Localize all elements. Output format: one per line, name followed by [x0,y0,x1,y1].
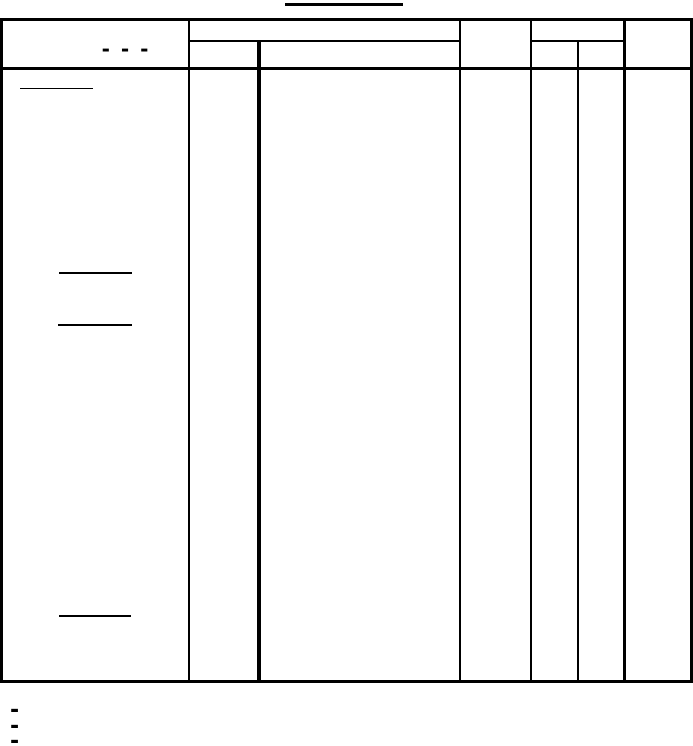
column-divider-6 [623,18,626,683]
footnote-dash-3: - [10,734,30,746]
column-divider-3 [459,18,461,683]
column-divider-2-thick [257,40,261,683]
blank-entry-line-2 [59,272,132,274]
scanned-document-page: - - - - - - [0,0,693,746]
header-sub-rule-left [188,40,460,42]
blank-entry-line-4 [59,615,131,617]
table-border-bottom [0,680,693,683]
table-border-left [0,18,3,683]
title-underline [285,3,403,6]
header-bottom-rule [0,67,693,70]
blank-entry-line-1 [20,88,93,89]
column-divider-1 [188,18,190,683]
header-left-placeholder: - - - [96,36,156,62]
blank-entry-line-3 [58,324,132,326]
table-border-top [0,18,693,21]
column-divider-4 [530,18,532,683]
column-divider-5 [577,40,579,683]
